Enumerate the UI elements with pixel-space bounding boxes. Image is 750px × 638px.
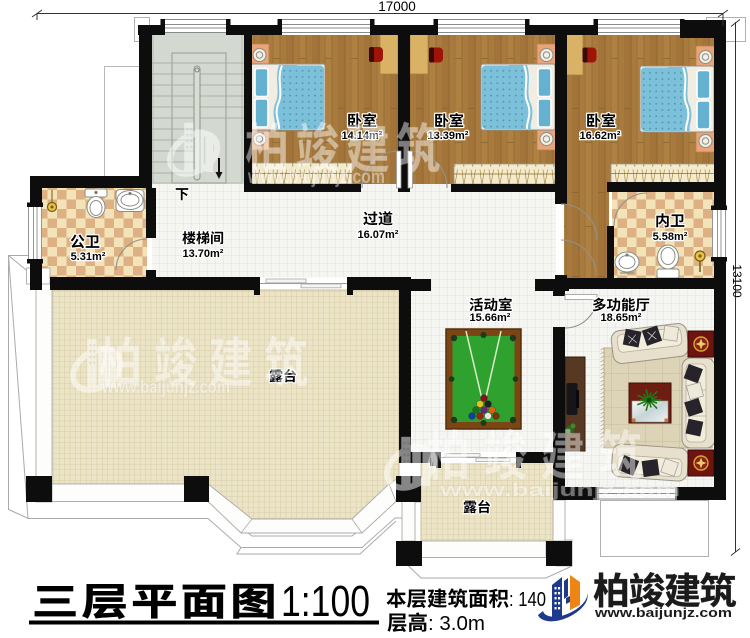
svg-text:18.65m²: 18.65m² [601,312,642,324]
svg-text:: 3.0m: : 3.0m [428,612,485,635]
svg-text:17000: 17000 [378,0,416,14]
svg-text:www.baijunjz.com: www.baijunjz.com [438,480,680,500]
svg-text:13100: 13100 [730,264,744,298]
svg-text:15.66m²: 15.66m² [470,312,511,324]
svg-text:: 140: : 140 [509,588,546,611]
svg-text:5.31m²: 5.31m² [71,251,106,263]
svg-text:5.58m²: 5.58m² [653,231,688,243]
svg-text:1:100: 1:100 [281,577,370,626]
svg-text:13.70m²: 13.70m² [183,248,224,260]
svg-text:www.baijunjz.com: www.baijunjz.com [101,377,230,397]
svg-text:16.07m²: 16.07m² [358,229,399,241]
svg-text:www.baijunjz.com: www.baijunjz.com [594,605,732,620]
svg-text:www.baijunjz.com: www.baijunjz.com [247,166,385,188]
svg-text:16.62m²: 16.62m² [580,130,621,142]
